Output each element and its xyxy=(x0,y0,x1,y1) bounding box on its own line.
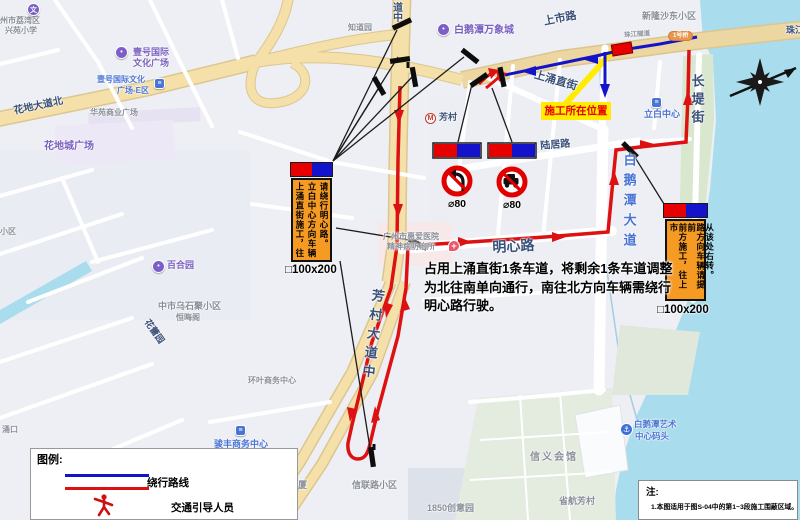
building-icon: ≡ xyxy=(235,425,246,436)
school-label: 兴苑小学 xyxy=(5,27,37,35)
metro-station-label: 芳村 xyxy=(439,113,457,122)
note-title: 注: xyxy=(646,484,659,498)
culture-plaza-pin: • xyxy=(115,46,128,59)
sign-diameter-label: ⌀80 xyxy=(448,198,466,210)
detour-route-red-line xyxy=(65,487,149,490)
place-label: 涌口 xyxy=(2,426,18,434)
note-box: 注: 1.本图适用于图S-04中的第1~3段施工围蔽区域。 xyxy=(638,480,798,520)
legend-item-label: 绕行路线 xyxy=(147,475,189,490)
poi-label: 知道园 xyxy=(348,24,372,32)
poi-label-pier: 白鹅潭艺术 xyxy=(634,420,677,429)
road-label-mingxin: 明心路 xyxy=(492,238,535,255)
legend-title: 图例: xyxy=(37,451,63,467)
legend-item-label: 交通引导人员 xyxy=(171,500,234,515)
art-center-building xyxy=(575,405,628,478)
poi-label: 壹号国际文化 xyxy=(97,76,145,84)
poi-label: 恒晦阁 xyxy=(176,314,200,322)
hospital-pin: + xyxy=(448,240,460,252)
diversion-description: 占用上涌直街1条车道，将剩余1条车道调整 为北往南单向通行，南往北方向车辆需绕行… xyxy=(424,260,726,316)
poi-label-liby: 立白中心 xyxy=(644,110,680,119)
sign-diameter-label: ⌀80 xyxy=(503,199,521,211)
traffic-diversion-map: 州市荔湾区兴苑小学壹号国际文化广场壹号国际文化广场-E区花地大道北华苑商业广场花… xyxy=(0,0,800,520)
poi-label: 百合园 xyxy=(167,261,194,270)
poi-label: 壹号国际 xyxy=(133,48,169,57)
poi-label-mall: 白鹅潭万象城 xyxy=(454,26,514,37)
poi-label: 广场-E区 xyxy=(117,87,149,95)
signboard-plate xyxy=(290,162,333,177)
metro-icon: M xyxy=(425,113,436,124)
hospital-label: 精神病防治所 xyxy=(387,243,435,251)
description-line: 为北往南单向通行，南往北方向车辆需绕行 xyxy=(424,279,726,298)
garden-pin: • xyxy=(152,260,165,273)
signboard-panel: 上涌直街施工，往 立白中心方向车辆 请绕行明心路。 xyxy=(291,178,332,262)
description-line: 占用上涌直街1条车道，将剩余1条车道调整 xyxy=(424,260,726,279)
road-label-baietan: 白鹅潭大道 xyxy=(622,153,636,253)
poi-label-pier: 中心码头 xyxy=(635,432,669,441)
poi-label: 1850创意园 xyxy=(427,504,474,513)
mall-pin: • xyxy=(437,23,450,36)
detour-route-blue-line xyxy=(65,474,149,477)
estate-label: 中市乌石聚小区 xyxy=(158,302,221,311)
poi-label: 省航芳村 xyxy=(559,497,595,506)
road-label-changdi: 长堤街 xyxy=(690,74,704,128)
construction-location-callout: 施工所在位置 xyxy=(541,102,611,120)
school-pin: 文 xyxy=(27,3,40,16)
road-label-zhujiang-tunnel: 珠江隧道 xyxy=(786,26,800,35)
poi-label: 花地城广场 xyxy=(44,142,94,153)
road-badge: 1号桥 xyxy=(668,31,693,41)
estate-label: 新隆沙东小区 xyxy=(642,12,696,21)
no-motor-vehicle-sign-icon xyxy=(499,169,525,195)
poi-label: 华苑商业广场 xyxy=(90,109,138,117)
building-icon: ≡ xyxy=(154,78,165,89)
sign-text-col: 请绕行明心路。 xyxy=(319,182,328,258)
estate-label: 信联路小区 xyxy=(352,481,397,490)
sign-text-col: 立白中心方向车辆 xyxy=(307,182,316,258)
note-line: 1.本图适用于图S-04中的第1~3段施工围蔽区域。 xyxy=(651,501,798,511)
estate-label: 小区 xyxy=(0,228,16,236)
guide-person-icon xyxy=(91,493,121,517)
road-label-partial: 道中 xyxy=(390,2,401,22)
ferry-pier-icon: ⚓ xyxy=(620,423,633,436)
district-label: 州市荔湾区 xyxy=(0,17,40,25)
sign-size-label: □100x200 xyxy=(285,264,337,276)
detour-signboard-left: 上涌直街施工，往 立白中心方向车辆 请绕行明心路。 □100x200 xyxy=(290,162,333,262)
building-icon: ≡ xyxy=(651,97,662,108)
sign-text-col: 上涌直街施工，往 xyxy=(295,182,304,258)
signboard-plate xyxy=(663,203,708,218)
hospital-label: 广州市惠爱医院 xyxy=(383,233,439,241)
legend-box: 图例: 绕行路线 交通引导人员 xyxy=(30,448,298,520)
description-line: 明心路行驶。 xyxy=(424,297,726,316)
no-left-turn-sign-icon xyxy=(444,168,470,194)
poi-label: 环叶商务中心 xyxy=(248,377,296,385)
poi-label: 文化广场 xyxy=(133,59,169,68)
poi-label: 信义会馆 xyxy=(530,453,578,464)
